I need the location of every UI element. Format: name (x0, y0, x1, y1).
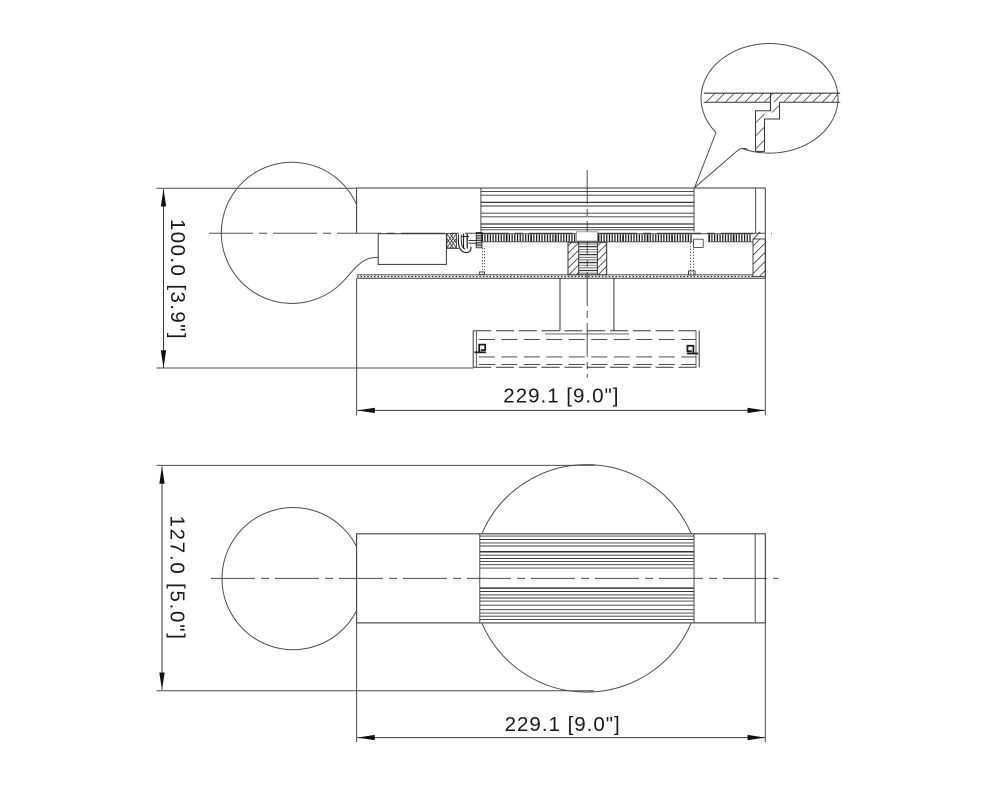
svg-text:229.1 [9.0"]: 229.1 [9.0"] (503, 384, 619, 407)
svg-text:100.0 [3.9"]: 100.0 [3.9"] (166, 219, 189, 340)
svg-text:127.0 [5.0"]: 127.0 [5.0"] (166, 516, 189, 641)
svg-text:229.1 [9.0"]: 229.1 [9.0"] (505, 713, 621, 736)
